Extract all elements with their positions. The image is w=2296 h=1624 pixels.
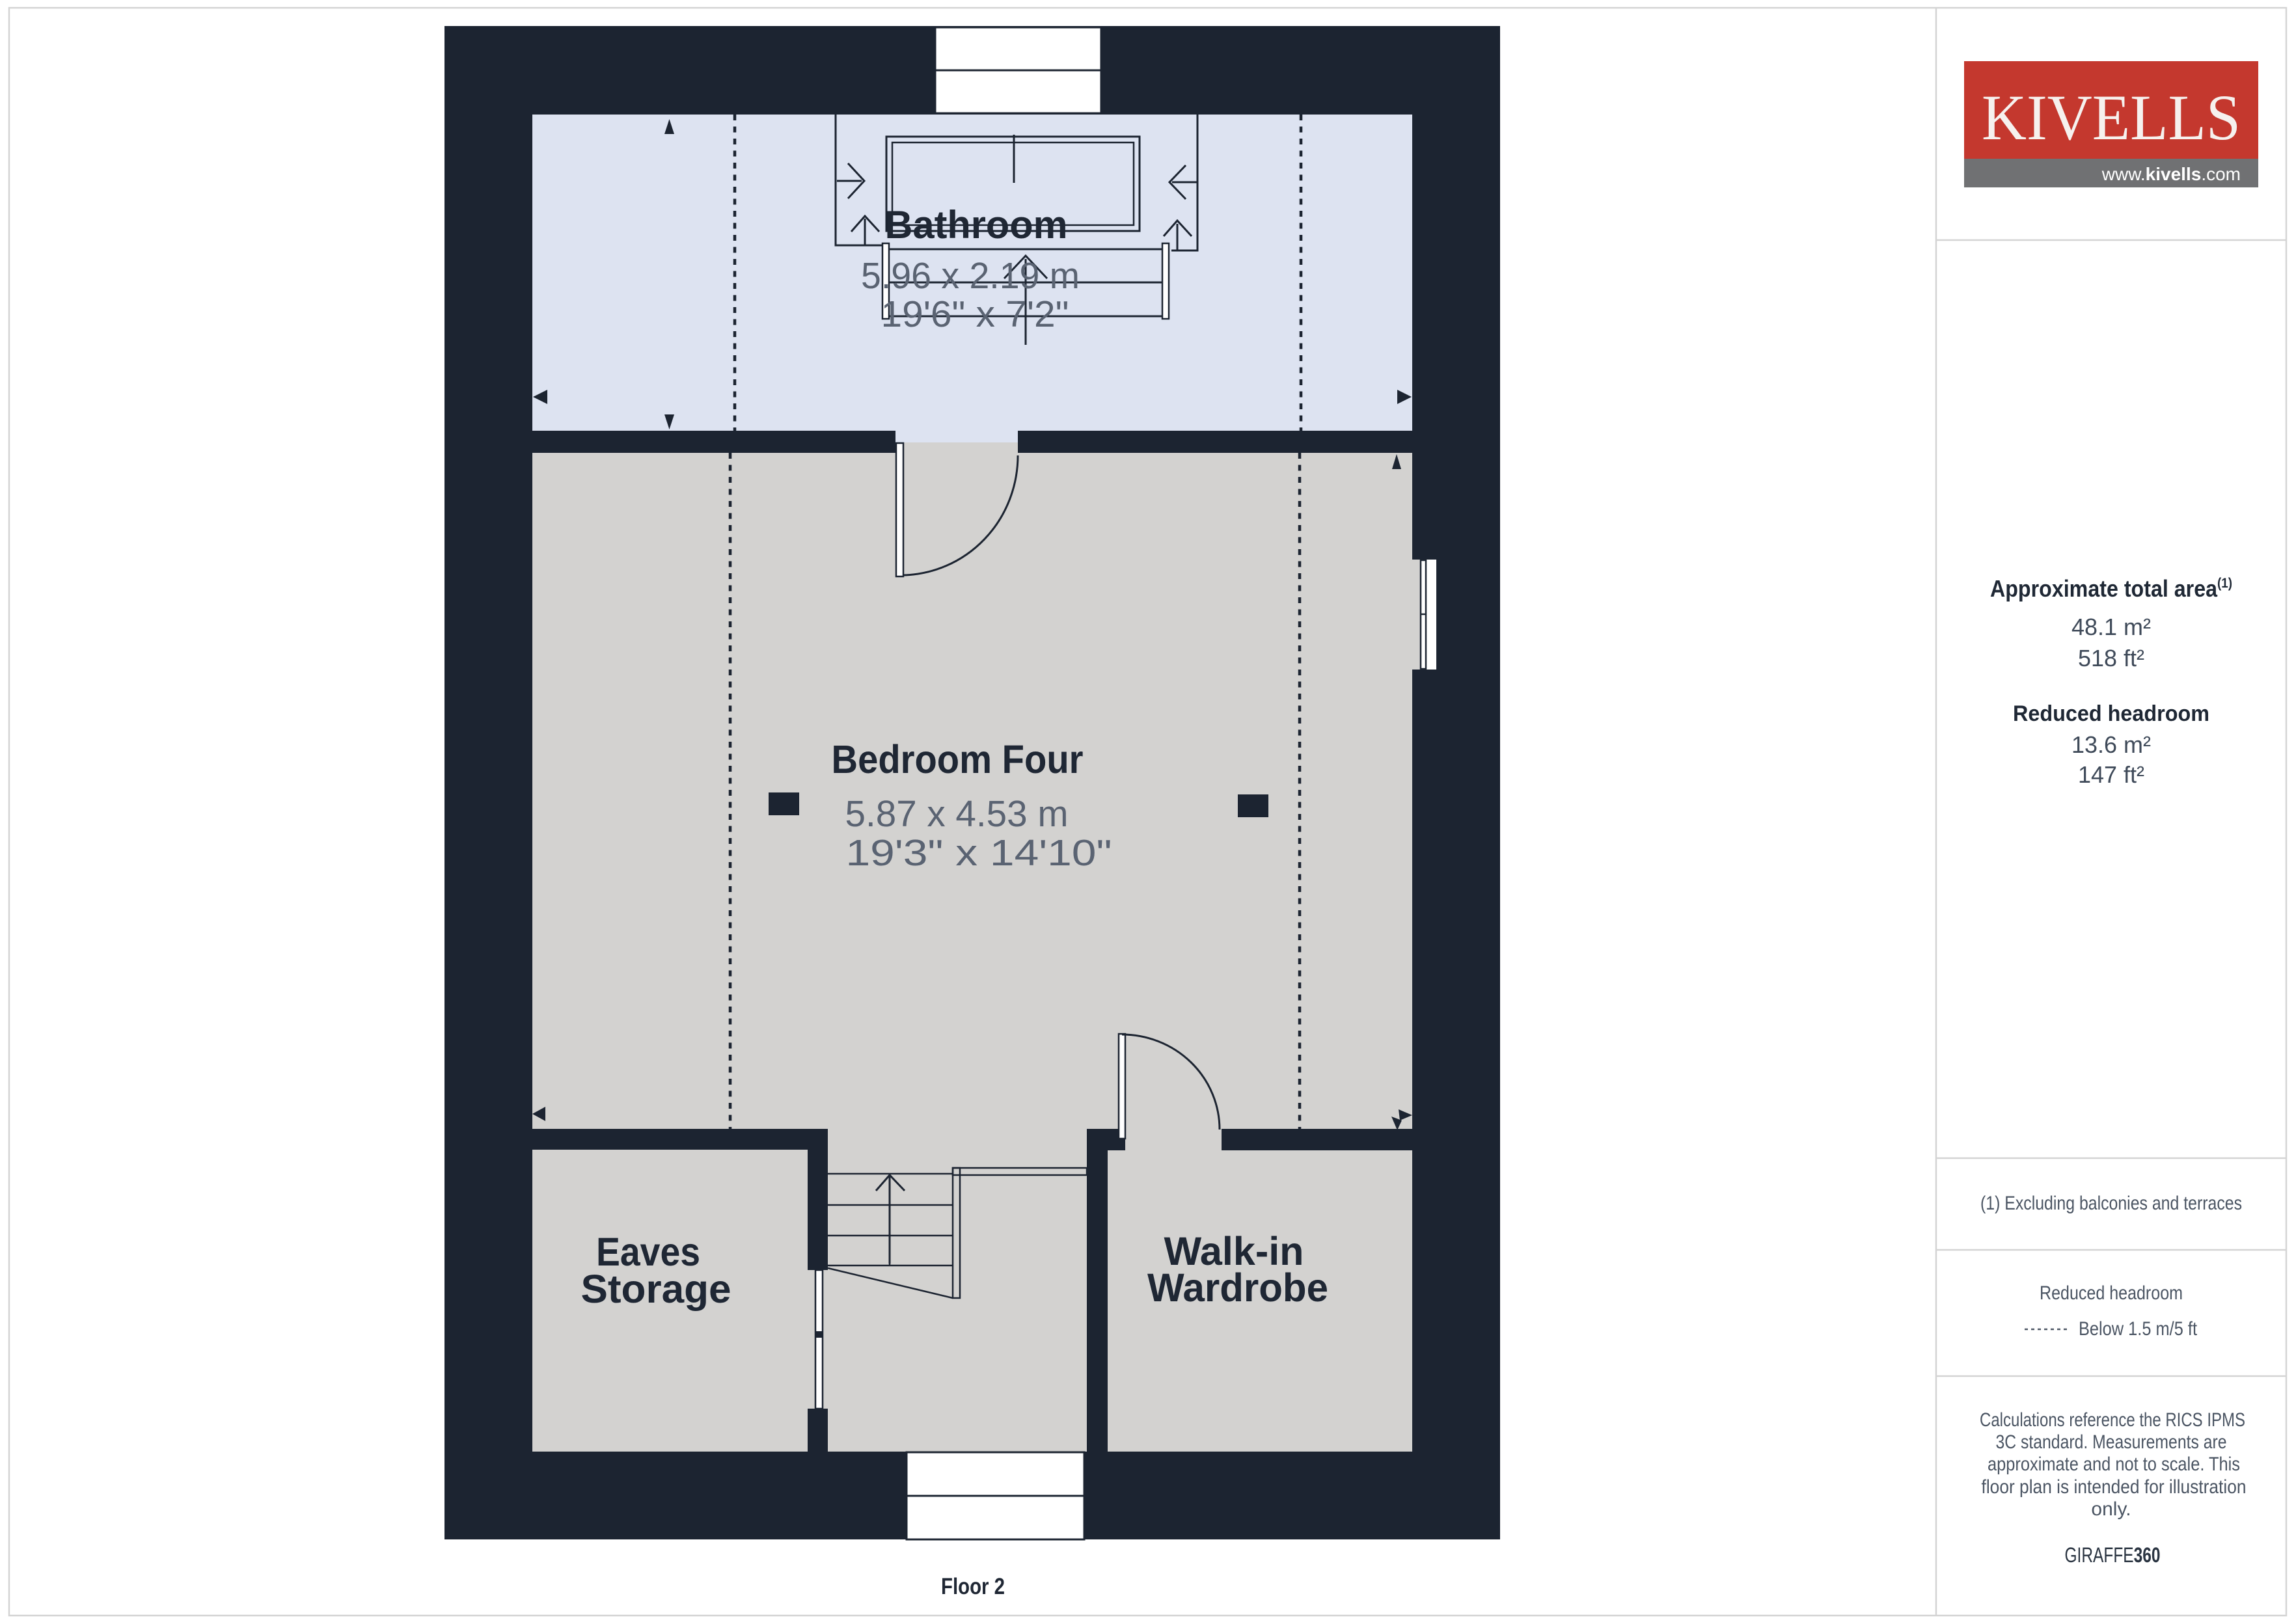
svg-text:Storage: Storage xyxy=(581,1267,731,1311)
svg-text:only.: only. xyxy=(2091,1498,2131,1520)
svg-text:(1) Excluding balconies and te: (1) Excluding balconies and terraces xyxy=(1980,1193,2242,1214)
svg-text:19'6" x 7'2": 19'6" x 7'2" xyxy=(881,293,1069,335)
svg-text:5.87 x 4.53 m: 5.87 x 4.53 m xyxy=(845,793,1069,835)
svg-text:Approximate total area(1): Approximate total area(1) xyxy=(1990,575,2232,602)
svg-text:Bedroom Four: Bedroom Four xyxy=(832,737,1084,781)
svg-text:www.kivells.com: www.kivells.com xyxy=(2101,164,2241,184)
svg-text:Below 1.5 m/5 ft: Below 1.5 m/5 ft xyxy=(2079,1318,2198,1340)
svg-text:5.96 x 2.19 m: 5.96 x 2.19 m xyxy=(861,255,1080,297)
svg-text:Reduced headroom: Reduced headroom xyxy=(2040,1282,2183,1304)
svg-text:Reduced headroom: Reduced headroom xyxy=(2013,701,2209,726)
svg-text:Floor 2: Floor 2 xyxy=(941,1574,1005,1599)
svg-text:Bathroom: Bathroom xyxy=(885,203,1068,247)
svg-text:Calculations reference the RIC: Calculations reference the RICS IPMS xyxy=(1980,1409,2245,1431)
svg-text:518 ft²: 518 ft² xyxy=(2078,645,2144,671)
svg-text:floor plan is intended for ill: floor plan is intended for illustration xyxy=(1982,1476,2247,1498)
svg-text:48.1 m²: 48.1 m² xyxy=(2071,614,2151,640)
svg-text:13.6 m²: 13.6 m² xyxy=(2071,731,2151,758)
svg-text:19'3" x 14'10": 19'3" x 14'10" xyxy=(846,832,1112,874)
svg-text:147 ft²: 147 ft² xyxy=(2078,761,2144,788)
svg-text:3C standard. Measurements are: 3C standard. Measurements are xyxy=(1996,1431,2227,1453)
svg-text:KIVELLS: KIVELLS xyxy=(1982,81,2241,154)
svg-text:approximate and not to scale.: approximate and not to scale. This xyxy=(1988,1454,2240,1475)
svg-text:GIRAFFE360: GIRAFFE360 xyxy=(2065,1543,2161,1567)
svg-text:Wardrobe: Wardrobe xyxy=(1147,1265,1328,1310)
